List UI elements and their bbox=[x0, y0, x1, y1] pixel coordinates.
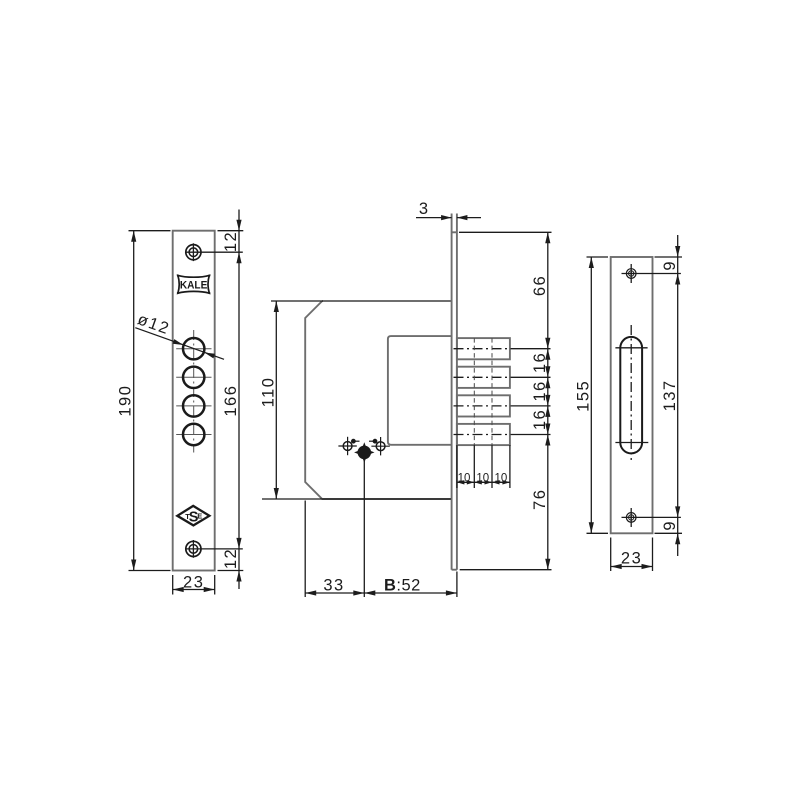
svg-text:16: 16 bbox=[531, 409, 549, 430]
svg-text:E: E bbox=[197, 512, 202, 521]
svg-text:16: 16 bbox=[531, 352, 549, 373]
svg-text:12: 12 bbox=[222, 231, 240, 252]
svg-text:9: 9 bbox=[661, 520, 679, 531]
svg-text:155: 155 bbox=[575, 380, 593, 412]
svg-text:10: 10 bbox=[458, 472, 471, 484]
svg-text:190: 190 bbox=[117, 385, 135, 417]
svg-text:3: 3 bbox=[419, 200, 430, 218]
svg-text:23: 23 bbox=[621, 550, 642, 568]
svg-text:12: 12 bbox=[222, 548, 240, 569]
svg-text:10: 10 bbox=[495, 472, 508, 484]
svg-text:9: 9 bbox=[661, 260, 679, 271]
svg-text:110: 110 bbox=[259, 377, 277, 408]
svg-text:B:52: B:52 bbox=[384, 577, 421, 595]
svg-text:23: 23 bbox=[183, 574, 204, 592]
svg-text:137: 137 bbox=[661, 379, 679, 411]
svg-text:66: 66 bbox=[531, 275, 549, 296]
svg-text:10: 10 bbox=[476, 472, 489, 484]
svg-text:16: 16 bbox=[531, 380, 549, 401]
svg-text:166: 166 bbox=[222, 385, 240, 417]
svg-text:76: 76 bbox=[531, 489, 549, 510]
svg-text:KALE: KALE bbox=[180, 279, 207, 291]
svg-text:33: 33 bbox=[323, 577, 344, 595]
